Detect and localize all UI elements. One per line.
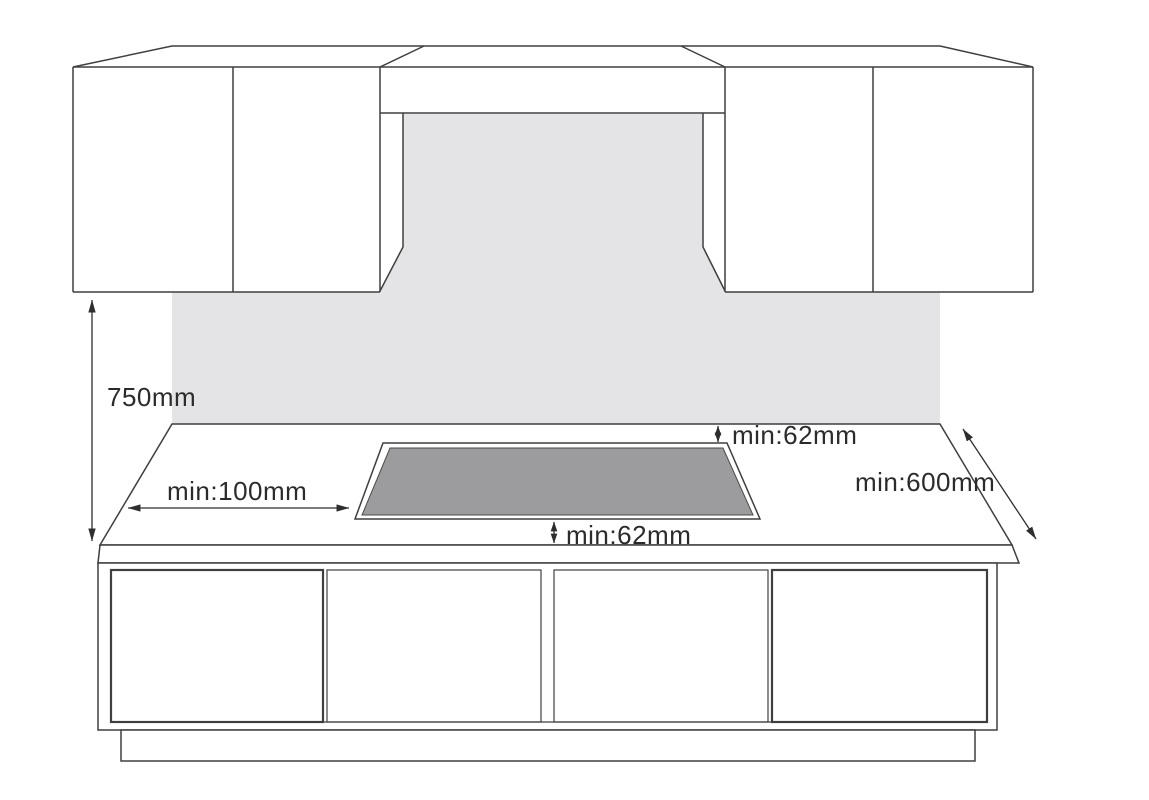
- hob-surface: [362, 448, 753, 515]
- wall-cabinet-left: [73, 67, 403, 292]
- base-cabinet: [98, 563, 997, 761]
- dimension-hob-to-back: min:62mm: [718, 420, 857, 450]
- diagram-canvas: 750mm min:100mm min:62mm min:62mm min:60…: [0, 0, 1149, 800]
- wall-cabinet-top-edges: [73, 46, 1033, 67]
- plinth: [121, 730, 975, 761]
- backsplash-wall: [172, 114, 940, 424]
- base-cabinet-door-4: [772, 570, 987, 722]
- dimension-label-min100mm: min:100mm: [167, 476, 307, 506]
- dimension-label-750mm: 750mm: [107, 382, 196, 412]
- hob: [355, 443, 760, 519]
- backsplash-fill: [172, 114, 940, 424]
- dimension-label-min600mm: min:600mm: [855, 467, 995, 497]
- base-cabinet-door-3: [554, 570, 768, 722]
- base-cabinet-door-2: [327, 570, 541, 722]
- dimension-label-min62mm-back: min:62mm: [732, 420, 857, 450]
- dimension-hob-to-front: min:62mm: [554, 520, 691, 550]
- installation-diagram: 750mm min:100mm min:62mm min:62mm min:60…: [0, 0, 1149, 800]
- base-cabinet-door-1: [111, 570, 323, 722]
- wall-cabinet-right: [703, 67, 1033, 292]
- dimension-label-min62mm-front: min:62mm: [566, 520, 691, 550]
- countertop-front-edge: [98, 545, 1019, 563]
